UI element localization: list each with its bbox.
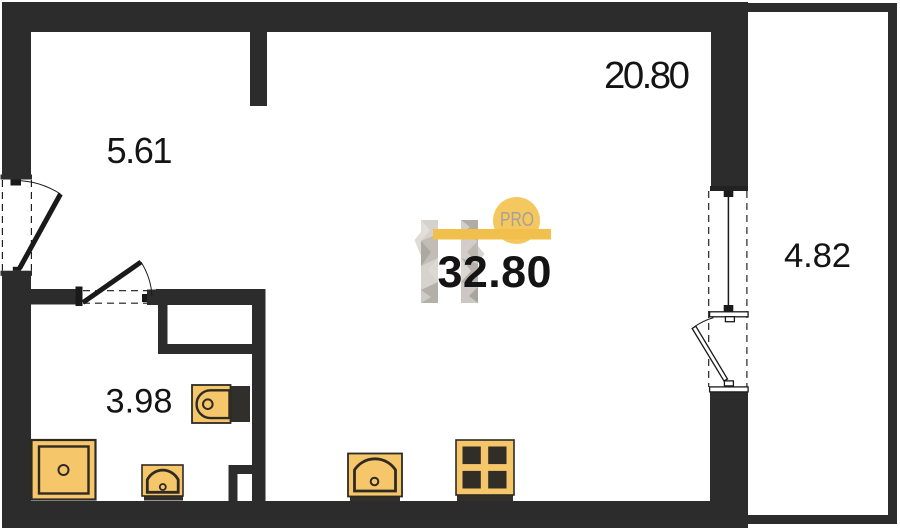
svg-text:20.80: 20.80	[604, 54, 690, 97]
svg-text:4.82: 4.82	[784, 237, 851, 275]
svg-text:PRO: PRO	[500, 209, 534, 231]
svg-text:32.80: 32.80	[438, 246, 552, 297]
svg-text:5.61: 5.61	[107, 130, 173, 171]
svg-text:3.98: 3.98	[106, 383, 173, 421]
